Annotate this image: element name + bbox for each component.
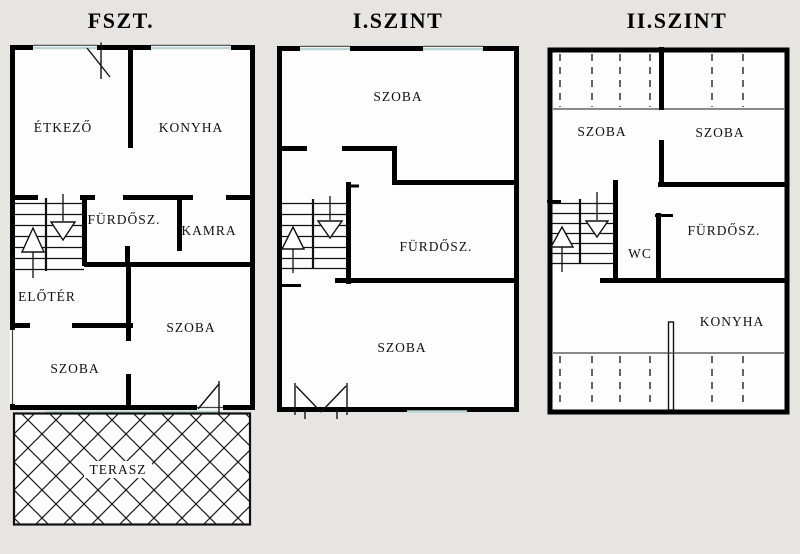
plan-first-floor: I.SZINT	[277, 8, 517, 419]
room-label-kamra: KAMRA	[181, 223, 236, 238]
room-label-szoba-left: SZOBA	[577, 124, 626, 139]
plan-title-szint1: I.SZINT	[353, 8, 444, 33]
room-label-furdosz: FÜRDŐSZ.	[88, 212, 161, 227]
room-label-eloter: ELŐTÉR	[18, 289, 76, 304]
room-label-konyha: KONYHA	[159, 120, 224, 135]
room-label-terasz: TERASZ	[89, 462, 146, 477]
plan-second-floor: II.SZINT	[547, 8, 787, 412]
room-label-szoba-left: SZOBA	[50, 361, 99, 376]
room-label-konyha: KONYHA	[700, 314, 765, 329]
room-label-wc: WC	[628, 246, 652, 261]
room-label-szoba-bottom: SZOBA	[377, 340, 426, 355]
plan-title-fszt: FSZT.	[88, 8, 154, 33]
fszt-left-wall-opening	[10, 330, 16, 404]
floorplan-drawing: FSZT.	[0, 0, 800, 554]
plan-ground-floor: FSZT.	[10, 8, 253, 525]
room-label-furdosz: FÜRDŐSZ.	[688, 223, 761, 238]
floorplan-canvas: FSZT.	[0, 0, 800, 554]
room-label-szoba-right: SZOBA	[166, 320, 215, 335]
room-label-furdosz: FÜRDŐSZ.	[400, 239, 473, 254]
chimney	[669, 322, 674, 410]
room-label-szoba-right: SZOBA	[695, 125, 744, 140]
room-label-szoba-top: SZOBA	[373, 89, 422, 104]
room-label-etkezo: ÉTKEZŐ	[34, 120, 92, 135]
plan-title-szint2: II.SZINT	[627, 8, 728, 33]
